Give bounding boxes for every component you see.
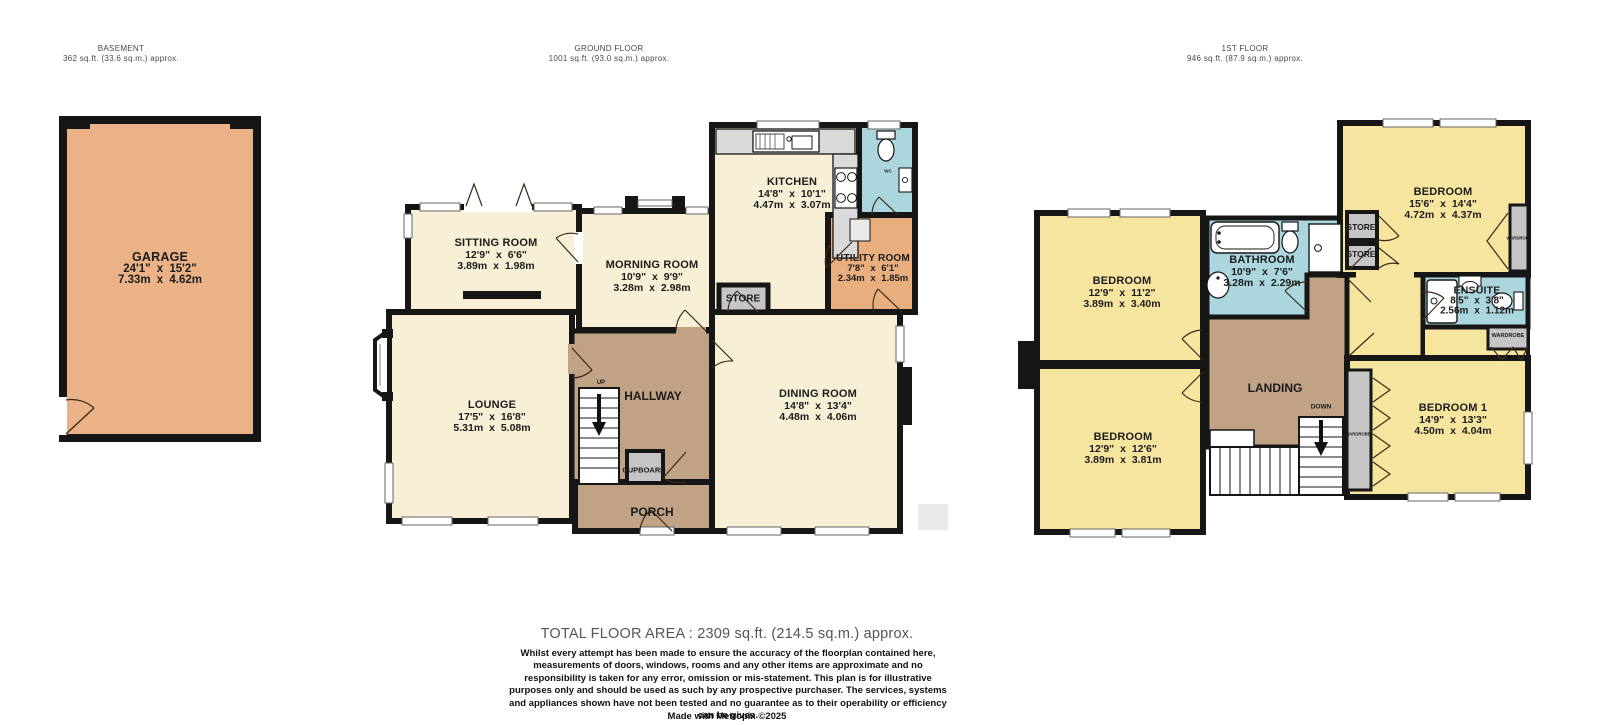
basement-title: BASEMENT 362 sq.ft. (33.6 sq.m.) approx. [63, 44, 179, 63]
utility-room-dims-metric: 2.34m x 1.85m [836, 274, 910, 284]
sitting-room-name: SITTING ROOM [454, 238, 537, 250]
chimney-breast [897, 367, 912, 425]
total-floor-area: TOTAL FLOOR AREA : 2309 sq.ft. (214.5 sq… [277, 626, 1177, 642]
french-doors [464, 184, 532, 212]
ensuite-name: ENSUITE [1440, 285, 1514, 296]
first-title-area: 946 sq.ft. (87.9 sq.m.) approx. [1187, 54, 1303, 64]
first-floor-plan [1018, 119, 1532, 537]
wardrobe-label-bedroom-1: WARDROBE [1346, 432, 1371, 437]
watermark-square [918, 504, 948, 530]
kitchen-name: KITCHEN [753, 177, 830, 189]
wardrobe-label-bedroom-tr: WARDROBE [1507, 236, 1532, 241]
fireplace [463, 291, 541, 299]
hob-icon [835, 168, 857, 208]
sitting-room-dims-metric: 3.89m x 1.98m [454, 261, 537, 273]
kitchen-sink-icon [753, 131, 819, 152]
bathtub-icon [1211, 222, 1279, 253]
morning-room-name: MORNING ROOM [606, 260, 699, 272]
room-label-kitchen: KITCHEN 14'8" x 10'1" 4.47m x 3.07m [753, 177, 830, 212]
room-label-utility-room: UTILITY ROOM 7'8" x 6'1" 2.34m x 1.85m [836, 254, 910, 284]
room-label-sitting-room: SITTING ROOM 12'9" x 6'6" 3.89m x 1.98m [454, 238, 537, 273]
lounge-name: LOUNGE [453, 400, 530, 412]
store-label-ground: STORE [726, 294, 760, 305]
porch-label: PORCH [630, 505, 673, 519]
floorplan-page: BASEMENT 362 sq.ft. (33.6 sq.m.) approx.… [0, 0, 1600, 725]
wc-toilet-icon [877, 131, 895, 161]
up-label: UP [597, 380, 605, 386]
bedroom-bl-dims-metric: 3.89m x 3.81m [1084, 455, 1161, 467]
shower-icon [1309, 224, 1341, 272]
lounge-dims-metric: 5.31m x 5.08m [453, 423, 530, 435]
room-label-bathroom: BATHROOM 10'9" x 7'6" 3.28m x 2.29m [1223, 255, 1300, 290]
store-label-1: STORE [1346, 222, 1375, 232]
bay-window [375, 329, 393, 401]
bathroom-name: BATHROOM [1223, 255, 1300, 267]
bedroom-tr-dims-metric: 4.72m x 4.37m [1404, 210, 1481, 222]
bedroom-tl-name: BEDROOM [1083, 276, 1160, 288]
room-label-bedroom-bl: BEDROOM 12'9" x 12'6" 3.89m x 3.81m [1084, 432, 1161, 467]
garage-dims-metric: 7.33m x 4.62m [118, 275, 202, 287]
wardrobe-label-ensuite: WARDROBE [1492, 333, 1525, 339]
bedroom-1-name: BEDROOM 1 [1414, 403, 1491, 415]
landing-label: LANDING [1248, 381, 1303, 395]
room-label-dining-room: DINING ROOM 14'8" x 13'4" 4.48m x 4.06m [779, 389, 857, 424]
floorplan-canvas [0, 0, 1600, 725]
ground-title-area: 1001 sq.ft. (93.0 sq.m.) approx. [549, 54, 670, 64]
wc-label: WC [884, 169, 892, 174]
ensuite-dims-metric: 2.56m x 1.12m [1440, 306, 1514, 317]
room-label-lounge: LOUNGE 17'5" x 16'8" 5.31m x 5.08m [453, 400, 530, 435]
room-label-morning-room: MORNING ROOM 10'9" x 9'9" 3.28m x 2.98m [606, 260, 699, 295]
first-title-name: 1ST FLOOR [1187, 44, 1303, 54]
utility-appliance [850, 219, 870, 241]
store-label-2: STORE [1346, 249, 1375, 259]
stairs-up [579, 388, 619, 484]
bedroom-tr-name: BEDROOM [1404, 187, 1481, 199]
ground-title: GROUND FLOOR 1001 sq.ft. (93.0 sq.m.) ap… [549, 44, 670, 63]
first-title: 1ST FLOOR 946 sq.ft. (87.9 sq.m.) approx… [1187, 44, 1303, 63]
hallway-label: HALLWAY [624, 389, 682, 403]
bedroom-bl-name: BEDROOM [1084, 432, 1161, 444]
dining-room-dims-metric: 4.48m x 4.06m [779, 412, 857, 424]
room-label-ensuite: ENSUITE 8'5" x 3'8" 2.56m x 1.12m [1440, 285, 1514, 317]
ground-title-name: GROUND FLOOR [549, 44, 670, 54]
bedroom-tl-dims-metric: 3.89m x 3.40m [1083, 299, 1160, 311]
metropix-credit: Made with Metropix ©2025 [277, 711, 1177, 722]
chimney-breast-first [1018, 341, 1037, 389]
down-label: DOWN [1311, 404, 1332, 411]
room-label-bedroom-tr: BEDROOM 15'6" x 14'4" 4.72m x 4.37m [1404, 187, 1481, 222]
wc-basin-icon [899, 168, 912, 192]
garage-name: GARAGE [118, 252, 202, 264]
room-label-bedroom-1: BEDROOM 1 14'9" x 13'3" 4.50m x 4.04m [1414, 403, 1491, 438]
bathroom-toilet-icon [1282, 222, 1298, 253]
bathroom-dims-metric: 3.28m x 2.29m [1223, 278, 1300, 290]
basement-title-name: BASEMENT [63, 44, 179, 54]
room-label-garage: GARAGE 24'1" x 15'2" 7.33m x 4.62m [118, 252, 202, 287]
bedroom-1-dims-metric: 4.50m x 4.04m [1414, 426, 1491, 438]
basement-title-area: 362 sq.ft. (33.6 sq.m.) approx. [63, 54, 179, 64]
room-label-bedroom-tl: BEDROOM 12'9" x 11'2" 3.89m x 3.40m [1083, 276, 1160, 311]
dining-room-name: DINING ROOM [779, 389, 857, 401]
morning-room-dims-metric: 3.28m x 2.98m [606, 283, 699, 295]
kitchen-dims-metric: 4.47m x 3.07m [753, 200, 830, 212]
cupboard-label: CUPBOARD [622, 466, 665, 475]
